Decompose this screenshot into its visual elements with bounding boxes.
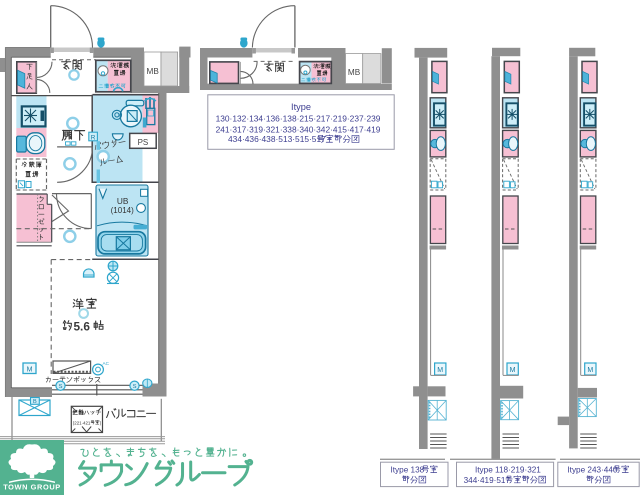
svg-text:S: S xyxy=(59,384,63,390)
svg-text:PS: PS xyxy=(138,138,149,147)
svg-text:(221·421: (221·421 xyxy=(73,420,91,425)
svg-text:Itype 138: Itype 138 xyxy=(391,466,425,475)
svg-text:Itype: Itype xyxy=(291,102,311,112)
svg-text:MB: MB xyxy=(147,67,160,76)
svg-text:130·132·134·136·138·215·217·21: 130·132·134·136·138·215·217·219·237·239 xyxy=(216,113,381,123)
svg-text:M: M xyxy=(587,367,593,374)
svg-text:S: S xyxy=(133,384,137,390)
svg-text:241·317·319·321·338·340·342·41: 241·317·319·321·338·340·342·415·417·419 xyxy=(216,124,381,134)
svg-text:M: M xyxy=(510,367,516,374)
svg-text:Itype 118·219·321: Itype 118·219·321 xyxy=(475,466,541,475)
svg-text:M: M xyxy=(437,367,443,374)
svg-text:UB: UB xyxy=(117,196,129,206)
svg-text:AC: AC xyxy=(103,361,110,366)
svg-text:434·436·438·513·515·517: 434·436·438·513·515·517 xyxy=(228,134,326,144)
svg-text:M: M xyxy=(27,367,33,374)
svg-text:R: R xyxy=(91,134,96,141)
svg-text:(1014): (1014) xyxy=(111,206,134,215)
svg-text:TOWN GROUP: TOWN GROUP xyxy=(3,483,61,492)
svg-text:MB: MB xyxy=(348,68,361,77)
svg-text:B: B xyxy=(33,399,37,405)
svg-text:5.6: 5.6 xyxy=(74,320,91,334)
svg-text:344·419·517: 344·419·517 xyxy=(464,476,511,485)
svg-text:Itype 243·440: Itype 243·440 xyxy=(567,466,618,475)
